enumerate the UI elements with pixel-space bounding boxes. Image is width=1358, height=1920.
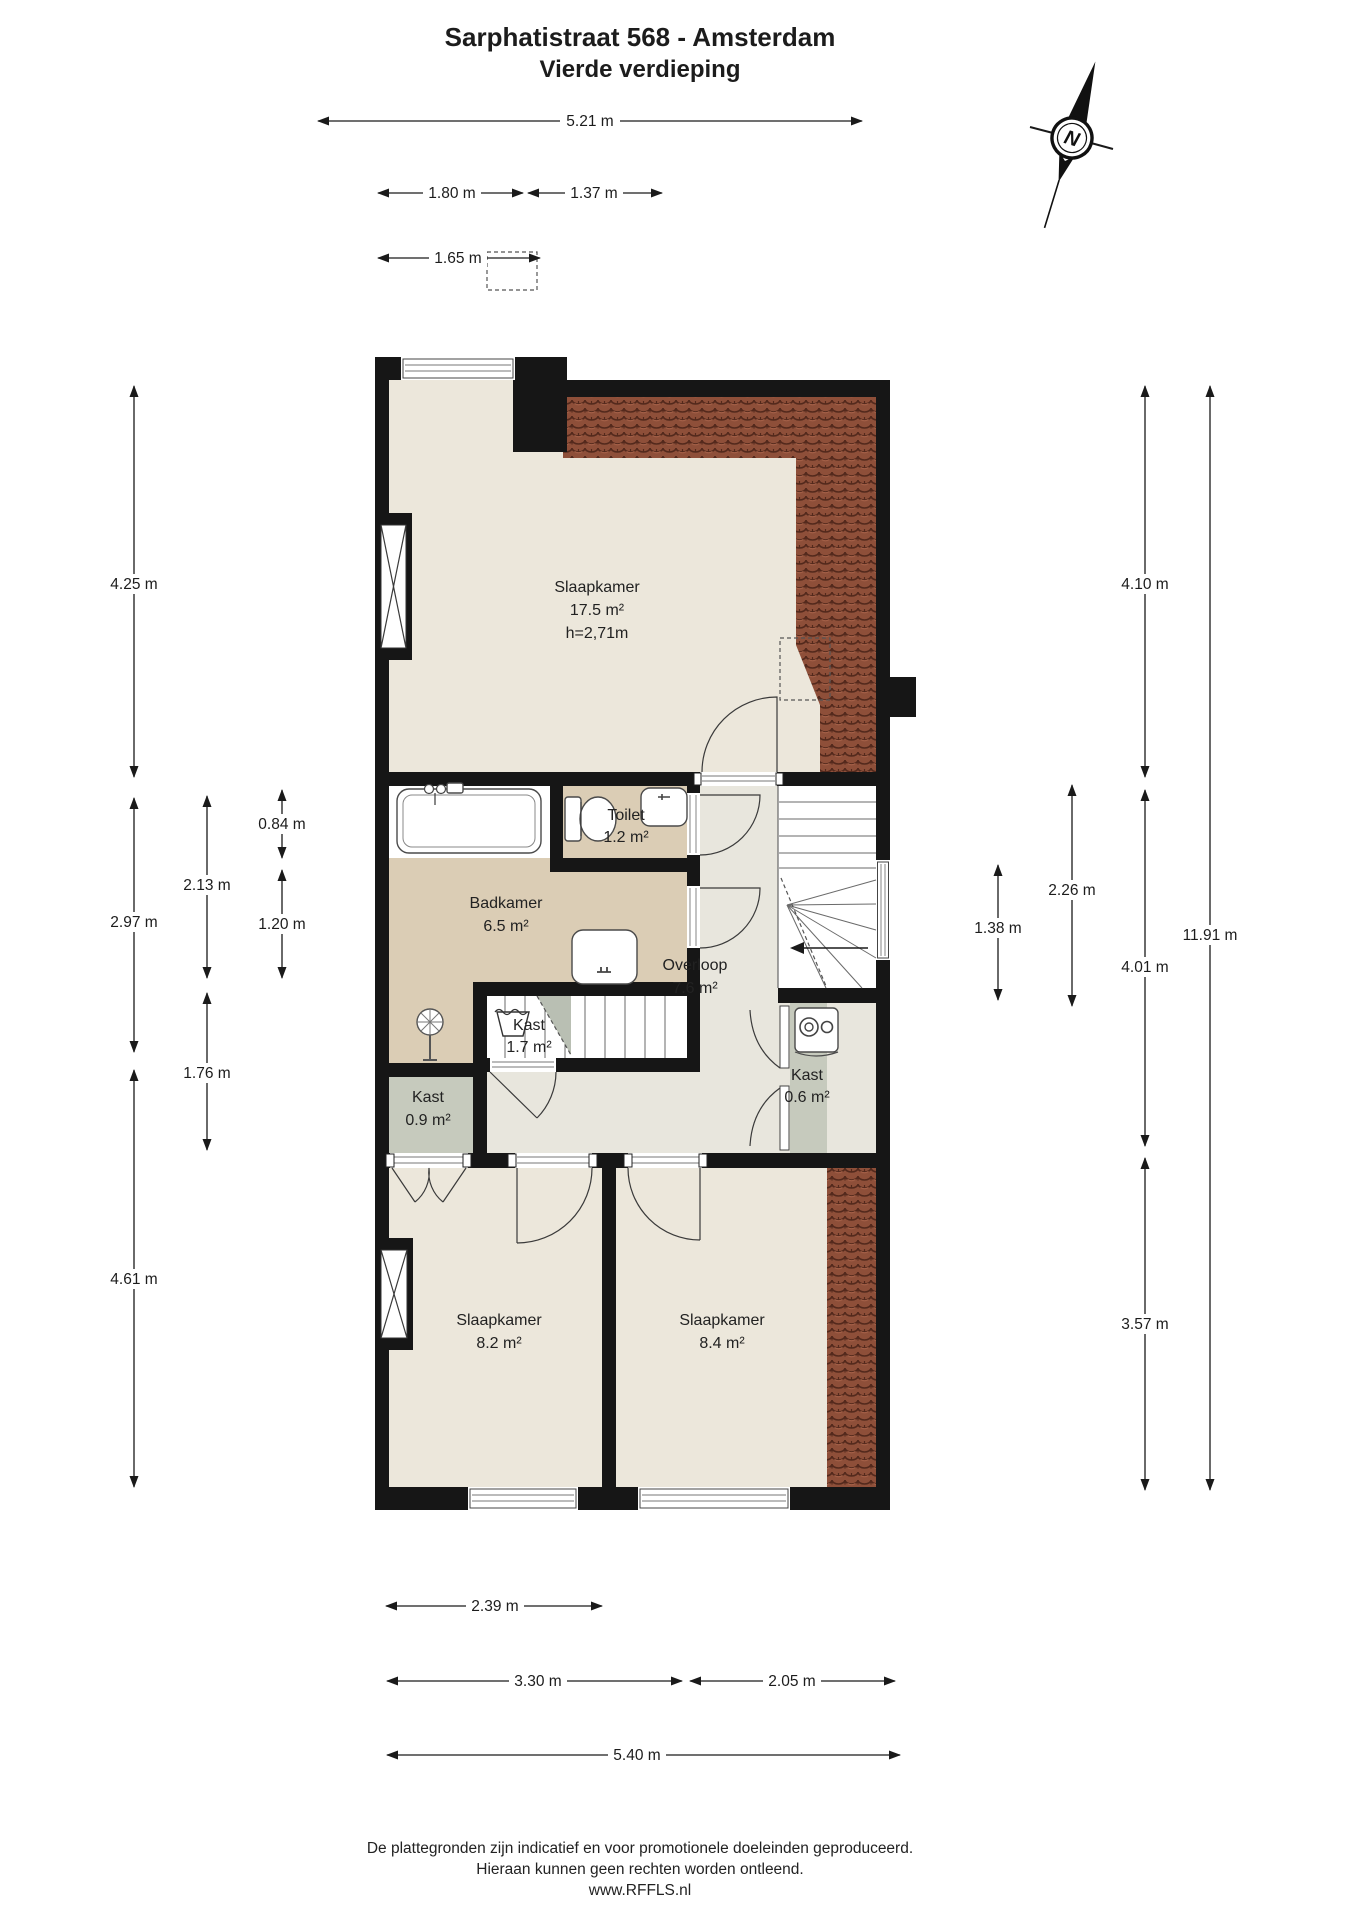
dimension-2-05: 2.05 m [690, 1671, 895, 1691]
wall [563, 380, 890, 397]
wall [550, 786, 563, 858]
dimension-5-40: 5.40 m [387, 1745, 900, 1765]
dimension-1-76: 1.76 m [178, 993, 236, 1150]
dimension-1-80: 1.80 m [378, 183, 523, 203]
room-label-kast2: Kast [412, 1089, 445, 1106]
wall [375, 1487, 890, 1510]
door-opening-kast2 [386, 1153, 471, 1168]
compass-rose: N [1025, 56, 1114, 234]
window-bottom-right [638, 1487, 790, 1510]
svg-text:11.91 m: 11.91 m [1183, 927, 1238, 944]
window-niche-upper-left [375, 513, 412, 660]
dimension-5-21: 5.21 m [318, 111, 862, 131]
dimension-3-30: 3.30 m [387, 1671, 682, 1691]
dimension-2-13: 2.13 m [178, 796, 236, 978]
dimension-11-91: 11.91 m [1177, 386, 1243, 1490]
svg-text:4.25 m: 4.25 m [110, 576, 157, 593]
dimension-2-39: 2.39 m [386, 1596, 602, 1616]
room-label-overloop: Overloop [663, 957, 728, 974]
boiler-kast3 [795, 1008, 838, 1056]
room-label-slaapkamer3: Slaapkamer [679, 1312, 765, 1329]
room-area-slaapkamer1: 17.5 m² [570, 602, 625, 619]
door-opening-toilet [687, 793, 700, 855]
window-bottom-left [468, 1487, 578, 1510]
window-stairwell-right [876, 860, 890, 960]
dimension-1-20: 1.20 m [253, 870, 311, 978]
svg-text:4.01 m: 4.01 m [1121, 959, 1168, 976]
room-area-overloop: 7.6 m² [672, 980, 718, 997]
svg-text:2.39 m: 2.39 m [471, 1598, 518, 1615]
room-area-badkamer: 6.5 m² [483, 918, 529, 935]
svg-text:1.65 m: 1.65 m [434, 250, 481, 267]
door-opening-slaapkamer1 [694, 772, 783, 786]
dimension-1-38: 1.38 m [969, 865, 1027, 1000]
wall [602, 1168, 616, 1487]
dimension-4-61: 4.61 m [105, 1070, 163, 1487]
room-label-kast1: Kast [513, 1017, 546, 1034]
door-opening-kast1 [490, 1058, 556, 1072]
svg-text:0.84 m: 0.84 m [258, 816, 305, 833]
svg-text:2.97 m: 2.97 m [110, 914, 157, 931]
svg-text:1.37 m: 1.37 m [570, 185, 617, 202]
window-top [401, 357, 515, 380]
bathtub [397, 783, 541, 853]
svg-text:3.57 m: 3.57 m [1121, 1316, 1168, 1333]
disclaimer-url: www.RFFLS.nl [588, 1882, 692, 1899]
dimension-4-25: 4.25 m [105, 386, 163, 777]
svg-text:1.76 m: 1.76 m [183, 1065, 230, 1082]
svg-text:1.20 m: 1.20 m [258, 916, 305, 933]
dimension-2-26: 2.26 m [1043, 785, 1101, 1006]
wall [375, 1063, 473, 1077]
room-area-kast2: 0.9 m² [405, 1112, 451, 1129]
svg-text:2.26 m: 2.26 m [1048, 882, 1095, 899]
wall [513, 357, 567, 452]
svg-text:2.13 m: 2.13 m [183, 877, 230, 894]
wall [778, 988, 890, 1003]
door-opening-badkamer [687, 886, 700, 948]
room-area-toilet: 1.2 m² [603, 829, 649, 846]
floorplan-page: Sarphatistraat 568 - Amsterdam Vierde ve… [0, 0, 1358, 1920]
dimension-0-84: 0.84 m [253, 790, 311, 858]
floor-stairwell [778, 786, 876, 988]
page-title: Sarphatistraat 568 - Amsterdam [445, 22, 836, 52]
svg-text:4.10 m: 4.10 m [1121, 576, 1168, 593]
dimension-4-10: 4.10 m [1116, 386, 1174, 777]
room-label-toilet: Toilet [607, 807, 645, 824]
disclaimer-line1: De plattegronden zijn indicatief en voor… [367, 1840, 913, 1857]
svg-text:4.61 m: 4.61 m [110, 1271, 157, 1288]
room-label-slaapkamer1: Slaapkamer [554, 579, 640, 596]
disclaimer: De plattegronden zijn indicatief en voor… [367, 1840, 913, 1899]
dimension-2-97: 2.97 m [105, 798, 163, 1052]
room-ceiling-slaapkamer1: h=2,71m [566, 625, 629, 642]
dimension-4-01: 4.01 m [1116, 790, 1174, 1146]
room-area-kast1: 1.7 m² [506, 1039, 552, 1056]
room-label-kast3: Kast [791, 1067, 824, 1084]
dimension-1-37: 1.37 m [528, 183, 662, 203]
room-label-slaapkamer2: Slaapkamer [456, 1312, 542, 1329]
svg-text:5.40 m: 5.40 m [613, 1747, 660, 1764]
floorplan-canvas: Sarphatistraat 568 - Amsterdam Vierde ve… [0, 0, 1358, 1920]
svg-text:2.05 m: 2.05 m [768, 1673, 815, 1690]
washbasin-badkamer [572, 930, 637, 984]
room-label-badkamer: Badkamer [470, 895, 544, 912]
disclaimer-line2: Hieraan kunnen geen rechten worden ontle… [476, 1861, 803, 1878]
wall [890, 677, 916, 717]
wall [473, 982, 487, 1168]
door-opening-slaapkamer3 [624, 1153, 707, 1168]
svg-text:5.21 m: 5.21 m [566, 113, 613, 130]
svg-text:1.38 m: 1.38 m [974, 920, 1021, 937]
window-niche-lower-left [375, 1238, 413, 1350]
page-subtitle: Vierde verdieping [540, 56, 741, 83]
dimension-1-65: 1.65 m [378, 248, 540, 268]
door-opening-slaapkamer2 [508, 1153, 597, 1168]
svg-text:3.30 m: 3.30 m [514, 1673, 561, 1690]
corner-sink-toilet [641, 788, 687, 826]
room-area-slaapkamer3: 8.4 m² [699, 1335, 745, 1352]
room-area-kast3: 0.6 m² [784, 1089, 830, 1106]
wall [550, 858, 700, 872]
svg-text:1.80 m: 1.80 m [428, 185, 475, 202]
room-area-slaapkamer2: 8.2 m² [476, 1335, 522, 1352]
dimension-3-57: 3.57 m [1116, 1158, 1174, 1490]
roof-tile-band-bottom-right [827, 1168, 876, 1487]
